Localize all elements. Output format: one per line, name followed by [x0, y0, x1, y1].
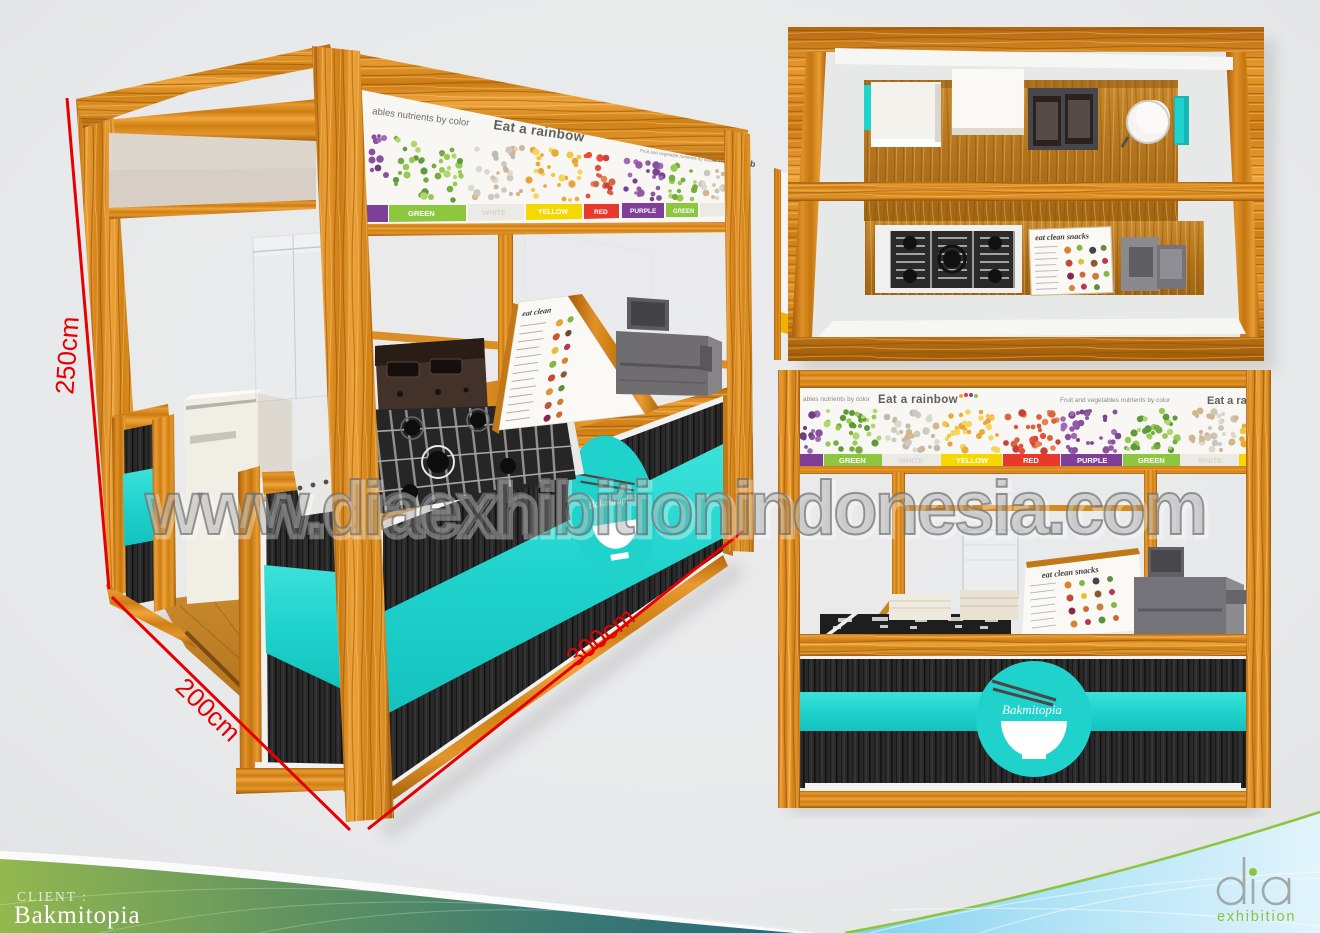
svg-text:WHITE: WHITE: [899, 456, 923, 465]
svg-text:PURPLE: PURPLE: [1077, 456, 1107, 465]
svg-text:RED: RED: [1023, 456, 1039, 465]
svg-text:GREEN: GREEN: [1138, 456, 1165, 465]
svg-text:GREEN: GREEN: [673, 209, 694, 215]
svg-text:exhibition: exhibition: [1217, 909, 1296, 925]
svg-text:Eat a rainbow: Eat a rainbow: [878, 394, 958, 406]
svg-text:250cm: 250cm: [49, 315, 84, 395]
svg-text:GREEN: GREEN: [839, 456, 866, 465]
svg-text:GREEN: GREEN: [408, 209, 435, 218]
svg-text:Fruit and vegetables nutrients: Fruit and vegetables nutrients by color: [1060, 397, 1171, 404]
svg-text:YELLOW: YELLOW: [538, 209, 568, 216]
svg-text:www.diaexhibitionindonesia.com: www.diaexhibitionindonesia.com: [144, 466, 1205, 551]
svg-text:WHITE: WHITE: [1198, 456, 1222, 465]
svg-text:RED: RED: [594, 209, 608, 216]
svg-text:eat clean snacks: eat clean snacks: [1035, 231, 1089, 242]
svg-text:YELLOW: YELLOW: [956, 456, 989, 465]
svg-text:ables nutrients by color: ables nutrients by color: [803, 396, 871, 403]
svg-text:Bakmitopia: Bakmitopia: [14, 902, 141, 929]
svg-text:Bakmitopia: Bakmitopia: [1002, 702, 1062, 717]
svg-text:PURPLE: PURPLE: [630, 208, 657, 215]
svg-text:WHITE: WHITE: [482, 208, 506, 217]
